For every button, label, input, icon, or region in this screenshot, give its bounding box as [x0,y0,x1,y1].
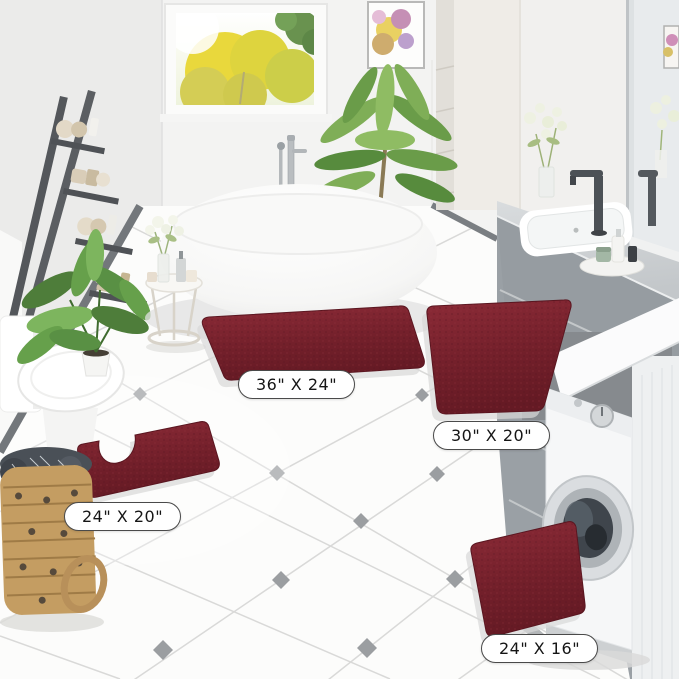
size-label-text: 24" X 20" [82,507,163,526]
bathroom-product-photo: 36" X 24" 30" X 20" 24" X 20" 24" X 16" [0,0,679,679]
scene-illustration [0,0,679,679]
size-label-30x20: 30" X 20" [433,421,550,450]
size-label-text: 30" X 20" [451,426,532,445]
size-label-36x24: 36" X 24" [238,370,355,399]
size-label-24x20: 24" X 20" [64,502,181,531]
mirror-reflection [630,0,679,268]
washer-button [574,399,582,407]
size-label-text: 24" X 16" [499,639,580,658]
linen-cabinet [436,0,520,210]
wall-art [368,2,424,68]
basket-body [0,464,98,615]
size-label-text: 36" X 24" [256,375,337,394]
mirror [626,0,679,268]
window [160,2,332,122]
window-sill [160,114,332,122]
size-label-24x16: 24" X 16" [481,634,598,663]
tub-rim [174,194,422,254]
